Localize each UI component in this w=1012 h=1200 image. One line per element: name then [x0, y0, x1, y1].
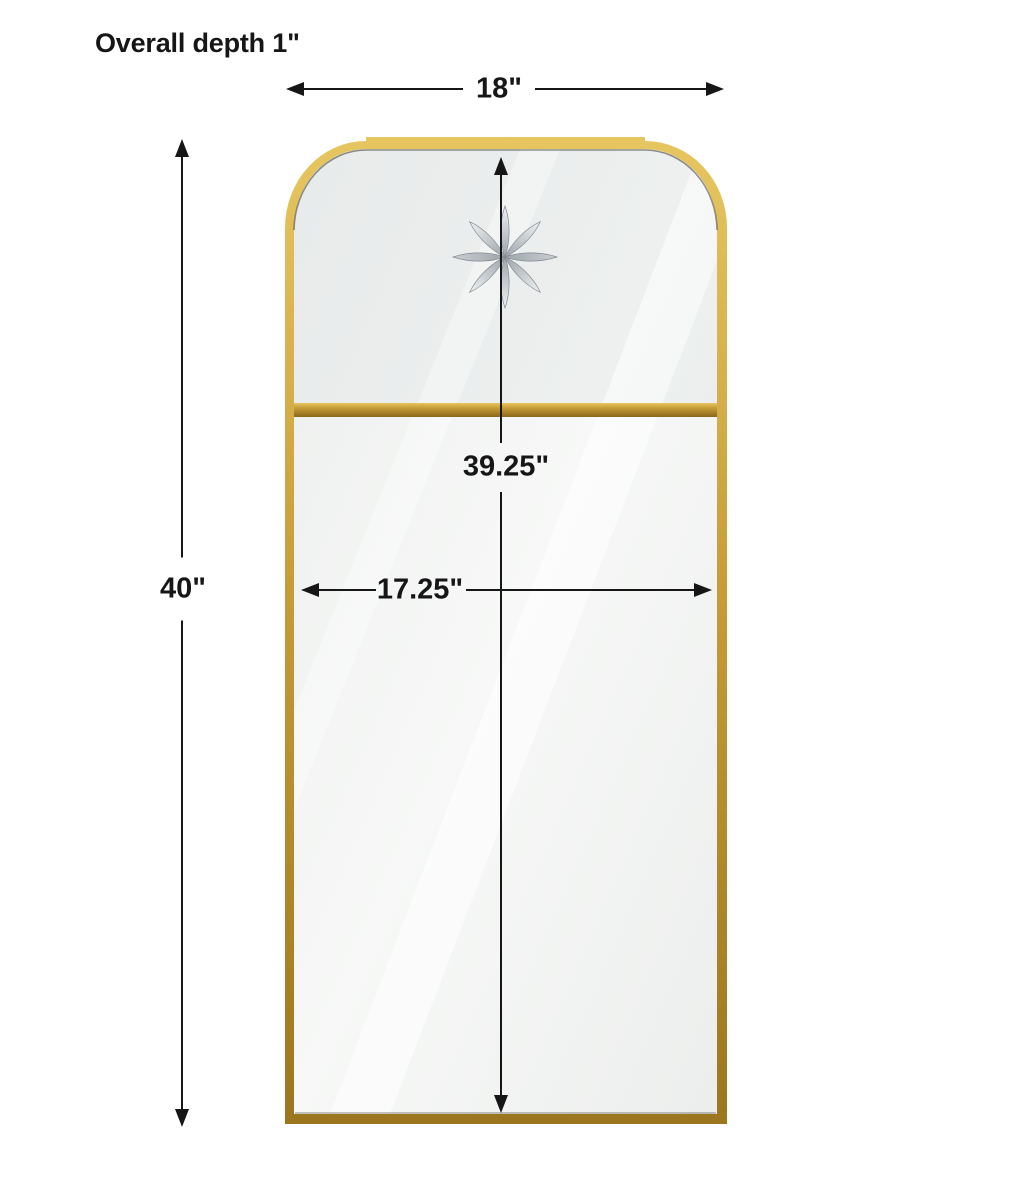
- height-dim-label: 40": [152, 558, 214, 621]
- inner-width-dim-line-left: [316, 589, 376, 591]
- inner-width-dim-line-right: [466, 589, 696, 591]
- inner-height-dim-line-upper: [500, 169, 502, 443]
- inner-height-dim-line-lower: [500, 492, 502, 1102]
- height-dim-arrow-up-icon: [175, 139, 189, 157]
- width-dim-label: 18": [463, 71, 535, 108]
- height-dim-arrow-down-icon: [175, 1109, 189, 1127]
- inner-width-dim-arrow-right-icon: [694, 583, 712, 597]
- inner-width-dim-arrow-left-icon: [301, 583, 319, 597]
- height-dim-line: [181, 151, 183, 1112]
- inner-height-dim-label: 39.25": [463, 453, 549, 482]
- width-dim-arrow-left-icon: [286, 82, 304, 96]
- inner-height-dim-arrow-down-icon: [494, 1095, 508, 1113]
- inner-height-dim-arrow-up-icon: [494, 157, 508, 175]
- width-dim-arrow-right-icon: [706, 82, 724, 96]
- mirror-divider-bar: [294, 403, 717, 417]
- diagram-canvas: Overall depth 1": [0, 0, 1012, 1200]
- inner-width-dim-label: 17.25": [377, 576, 463, 605]
